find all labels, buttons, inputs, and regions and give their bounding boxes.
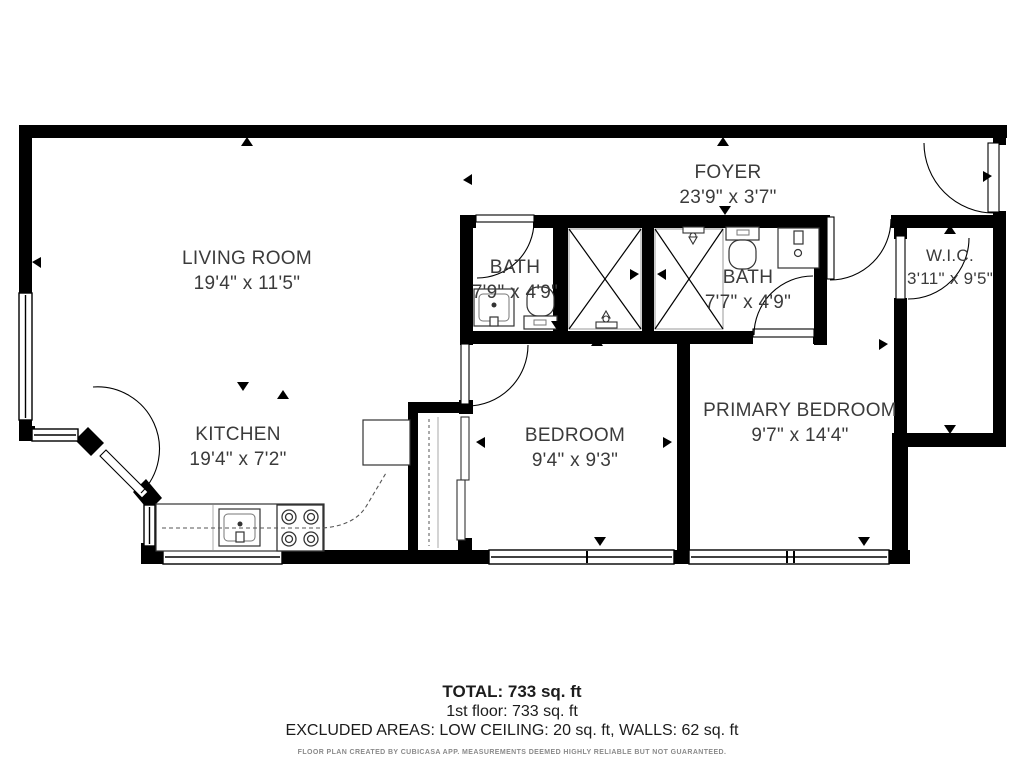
room-dims: 7'9" x 4'9" bbox=[472, 280, 558, 305]
room-name: BEDROOM bbox=[525, 423, 625, 448]
room-dims: 19'4" x 11'5" bbox=[182, 271, 312, 296]
room-label-wic: W.I.C. 3'11" x 9'5" bbox=[907, 244, 993, 290]
closet-sliding-door bbox=[457, 480, 465, 540]
exterior-walls bbox=[19, 125, 1007, 564]
primary-passage-door bbox=[827, 217, 891, 280]
room-dims: 19'4" x 7'2" bbox=[189, 447, 286, 472]
room-name: LIVING ROOM bbox=[182, 246, 312, 271]
room-label-bedroom: BEDROOM 9'4" x 9'3" bbox=[525, 423, 625, 473]
room-dims: 3'11" x 9'5" bbox=[907, 267, 993, 290]
kitchen-corner-window bbox=[32, 429, 78, 441]
toilet-icon-right-bath bbox=[726, 227, 759, 269]
room-label-foyer: FOYER 23'9" x 3'7" bbox=[679, 160, 776, 210]
room-label-living-room: LIVING ROOM 19'4" x 11'5" bbox=[182, 246, 312, 296]
floor-summary: TOTAL: 733 sq. ft 1st floor: 733 sq. ft … bbox=[0, 682, 1024, 756]
room-dims: 7'7" x 4'9" bbox=[705, 290, 791, 315]
room-dims: 23'9" x 3'7" bbox=[679, 185, 776, 210]
closet-sliding-door bbox=[461, 417, 469, 480]
primary-bedroom-window bbox=[689, 550, 889, 564]
room-name: PRIMARY BEDROOM bbox=[703, 398, 897, 423]
sink-icon-right-bath bbox=[778, 228, 819, 268]
room-name: FOYER bbox=[679, 160, 776, 185]
faucet-icon-shower-right bbox=[683, 227, 704, 244]
floor-plan-drawing bbox=[0, 0, 1024, 700]
room-name: W.I.C. bbox=[907, 244, 993, 267]
excluded-areas-text: EXCLUDED AREAS: LOW CEILING: 20 sq. ft, … bbox=[0, 721, 1024, 740]
room-name: BATH bbox=[472, 255, 558, 280]
room-dims: 9'4" x 9'3" bbox=[525, 448, 625, 473]
floor-plan-page: LIVING ROOM 19'4" x 11'5" FOYER 23'9" x … bbox=[0, 0, 1024, 768]
living-room-window bbox=[19, 293, 32, 420]
room-name: KITCHEN bbox=[189, 422, 286, 447]
disclaimer-text: FLOOR PLAN CREATED BY CUBICASA APP. MEAS… bbox=[0, 749, 1024, 756]
room-name: BATH bbox=[705, 265, 791, 290]
bedroom-window bbox=[489, 550, 674, 564]
floor-area-text: 1st floor: 733 sq. ft bbox=[0, 702, 1024, 721]
kitchen-bottom-window bbox=[163, 550, 282, 564]
room-label-primary-bedroom: PRIMARY BEDROOM 9'7" x 14'4" bbox=[703, 398, 897, 448]
bedroom-closet bbox=[429, 417, 469, 548]
kitchen-side-window bbox=[144, 505, 155, 546]
room-label-kitchen: KITCHEN 19'4" x 7'2" bbox=[189, 422, 286, 472]
room-dims: 9'7" x 14'4" bbox=[703, 423, 897, 448]
total-area-text: TOTAL: 733 sq. ft bbox=[0, 682, 1024, 702]
faucet-icon-shower-left bbox=[596, 311, 617, 328]
room-label-bath-right: BATH 7'7" x 4'9" bbox=[705, 265, 791, 315]
refrigerator-icon bbox=[363, 420, 410, 465]
bedroom-door bbox=[461, 344, 528, 406]
room-label-bath-left: BATH 7'9" x 4'9" bbox=[472, 255, 558, 305]
